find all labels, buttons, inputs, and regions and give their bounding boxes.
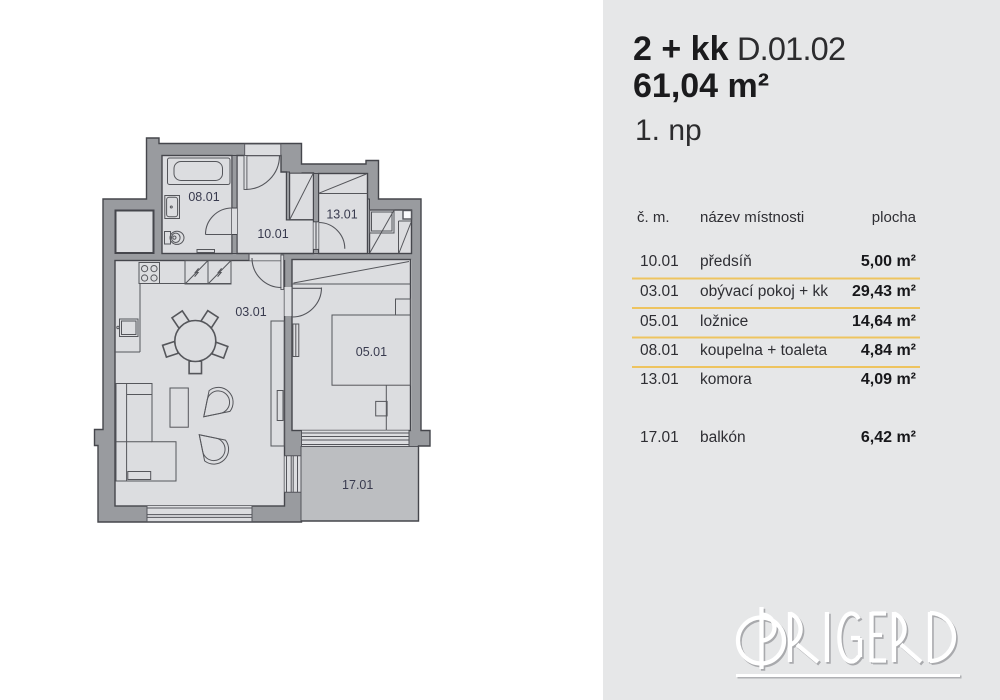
svg-text:balkón: balkón <box>700 429 746 446</box>
svg-text:10.01: 10.01 <box>257 227 288 241</box>
svg-text:13.01: 13.01 <box>640 371 679 388</box>
svg-text:předsíň: předsíň <box>700 253 752 270</box>
svg-text:název místnosti: název místnosti <box>700 209 804 226</box>
svg-text:08.01: 08.01 <box>188 190 219 204</box>
svg-text:03.01: 03.01 <box>235 305 266 319</box>
svg-text:4,84 m²: 4,84 m² <box>861 342 916 359</box>
svg-text:D.01.02: D.01.02 <box>737 31 845 67</box>
svg-text:10.01: 10.01 <box>640 253 679 270</box>
svg-text:61,04 m²: 61,04 m² <box>633 67 769 105</box>
svg-text:1. np: 1. np <box>635 114 702 147</box>
svg-text:4,09 m²: 4,09 m² <box>861 371 916 388</box>
svg-text:08.01: 08.01 <box>640 342 679 359</box>
svg-text:ložnice: ložnice <box>700 313 748 330</box>
svg-text:obývací pokoj + kk: obývací pokoj + kk <box>700 283 828 300</box>
svg-text:05.01: 05.01 <box>640 313 679 330</box>
svg-text:2 + kk: 2 + kk <box>633 30 729 68</box>
svg-text:plocha: plocha <box>872 209 917 226</box>
svg-text:17.01: 17.01 <box>342 478 373 492</box>
svg-text:17.01: 17.01 <box>640 429 679 446</box>
svg-text:29,43 m²: 29,43 m² <box>852 283 916 300</box>
svg-text:13.01: 13.01 <box>326 208 357 222</box>
svg-text:05.01: 05.01 <box>356 345 387 359</box>
svg-text:6,42 m²: 6,42 m² <box>861 429 916 446</box>
svg-text:koupelna + toaleta: koupelna + toaleta <box>700 342 827 359</box>
svg-text:03.01: 03.01 <box>640 283 679 300</box>
svg-text:komora: komora <box>700 371 752 388</box>
svg-text:č. m.: č. m. <box>637 209 670 226</box>
svg-text:14,64 m²: 14,64 m² <box>852 313 916 330</box>
svg-text:5,00 m²: 5,00 m² <box>861 253 916 270</box>
